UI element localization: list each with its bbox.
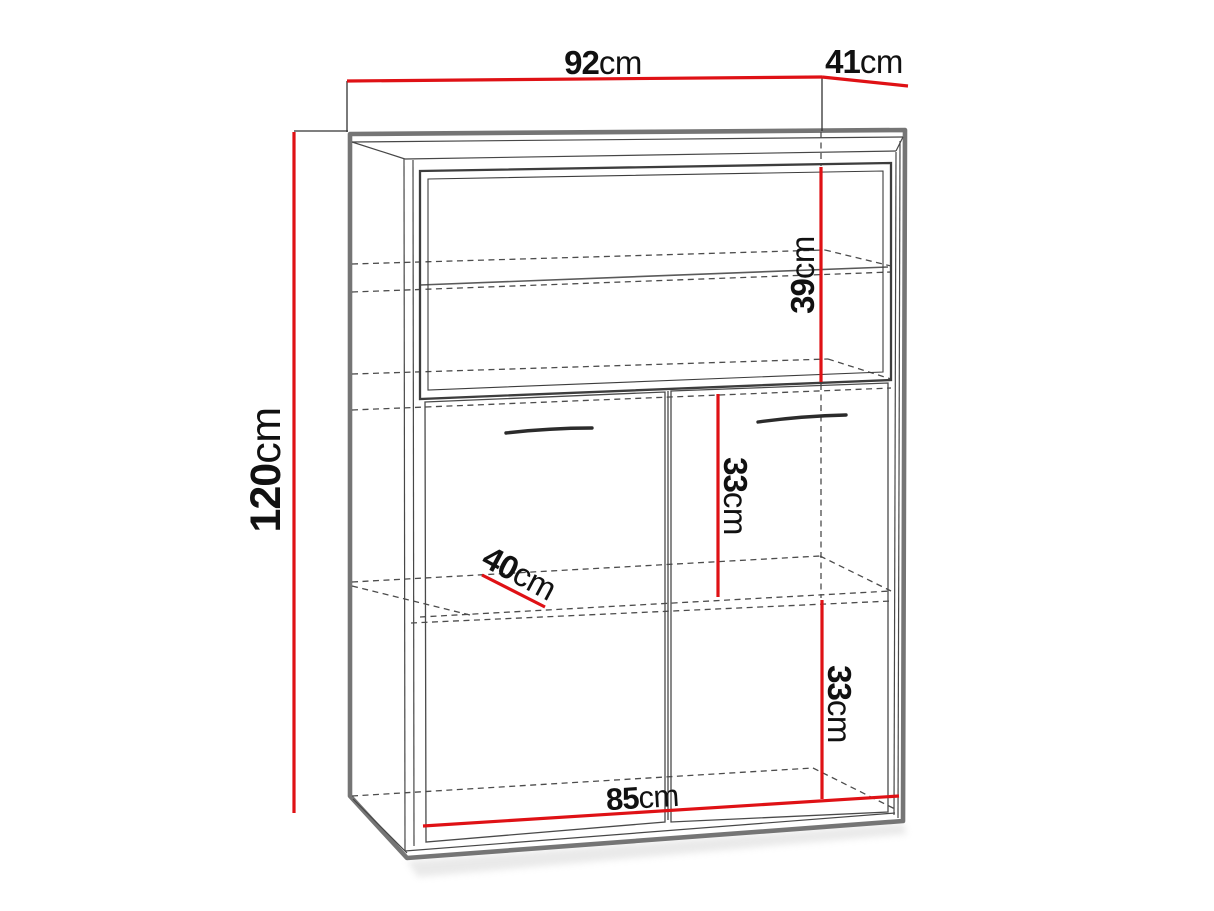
- label-overall-depth: 41cm: [825, 43, 903, 80]
- label-overall-height: 120cm: [242, 407, 290, 532]
- label-overall-width: 92cm: [564, 44, 642, 81]
- label-top-section-height: 39cm: [784, 236, 821, 314]
- label-inner-width: 85cm: [605, 778, 680, 817]
- label-bottom-section-height: 33cm: [821, 665, 858, 743]
- furniture-dimension-diagram: 92cm 41cm 120cm 39cm 33cm 40cm 33cm 85cm: [0, 0, 1214, 911]
- cabinet-drawing-canvas: 92cm 41cm 120cm 39cm 33cm 40cm 33cm 85cm: [0, 0, 1214, 911]
- label-middle-section-height: 33cm: [717, 457, 754, 535]
- extension-lines: [294, 78, 822, 132]
